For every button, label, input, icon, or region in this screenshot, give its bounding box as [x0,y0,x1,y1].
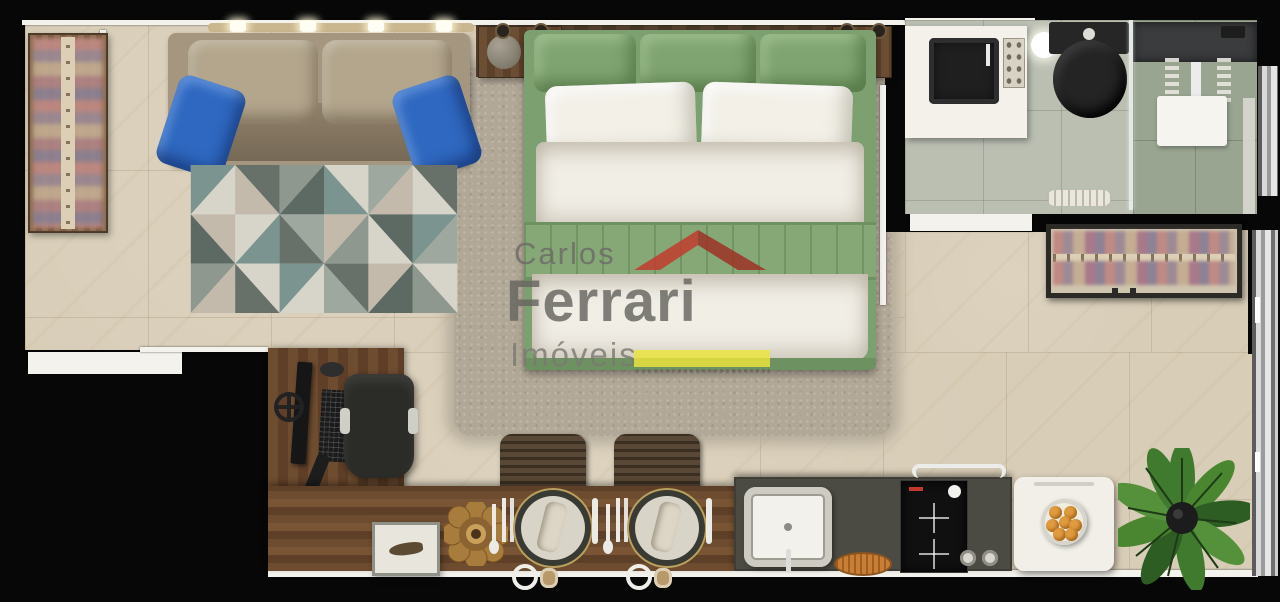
control-dial [948,485,961,498]
wall-line-bed-right [880,85,886,305]
glass-cup [654,568,672,588]
geometric-rug [190,165,458,313]
wall-lamp-icon [495,23,511,39]
flush-button [1083,28,1095,40]
faucet-icon [786,549,791,573]
napkin [535,500,568,554]
rack-foot [1130,288,1136,298]
faucet-icon [986,44,990,66]
kitchen-sink [744,487,832,567]
clothes-rack-right [1046,224,1242,298]
shower-column [1191,62,1201,98]
spoon-icon [492,504,496,542]
napkin [649,500,682,554]
plate [635,496,699,560]
plate [521,496,585,560]
white-side-table [372,522,440,576]
bathroom-window [1258,66,1278,196]
office-chair [344,374,414,478]
control-knob [982,550,998,566]
caster-wheel-icon [274,392,304,422]
oven-handle [912,464,1006,478]
spot-light-icon [368,21,384,32]
dining-chair [614,434,700,492]
fork-icon [502,498,506,542]
orange-fruit [1065,528,1078,541]
mouse [320,362,344,377]
bathroom-door-opening [910,211,1032,231]
spot-light-icon [300,21,316,32]
balcony-sliding-door [1252,230,1278,576]
drain-icon [784,523,792,531]
door-handle [1255,297,1260,323]
sofa [168,33,470,165]
wardrobe-left [28,33,108,233]
black-sink [929,38,999,104]
potted-plant [1118,448,1250,590]
fork-icon [510,498,514,542]
wall-line-under-living [140,347,268,352]
brand-mark [909,487,923,491]
spot-light-icon [436,21,452,32]
hanging-clothes-row [1053,261,1235,285]
rack-foot [1112,288,1118,298]
black-toilet [1053,40,1127,118]
fruit-bowl [1041,499,1087,545]
saucer-ring [512,564,538,590]
orange-dish [834,552,892,576]
accessory-tray [1003,38,1025,88]
place-setting [488,488,618,602]
armrest [340,408,350,434]
saucer-ring [626,564,652,590]
bathroom [905,20,1257,214]
outside-bottom-left [0,350,268,602]
bird-sculpture [388,541,423,558]
decor-stone-sphere [487,35,521,69]
shower-head [1221,26,1245,38]
double-bed [524,30,876,370]
closet-rod [61,37,75,229]
bed-foot-edge [524,358,876,370]
wall-segment-left-bottom [28,352,182,374]
module-handle [1034,482,1094,486]
place-setting [602,488,732,602]
fork-icon [616,498,620,542]
glass-cup [540,568,558,588]
shower-wall-panel [1243,98,1255,214]
white-duvet-foot [532,274,868,360]
white-duvet [536,142,864,228]
fork-icon [624,498,628,542]
control-knob [960,550,976,566]
green-blanket-band [524,222,876,280]
floorplan-canvas: Carlos Ferrari Imóveis [0,0,1280,602]
dining-chair [500,434,586,492]
door-handle [1255,452,1260,472]
ceiling-spot-rail [208,23,474,32]
knife-icon [706,498,712,544]
burner-mark-icon [919,503,949,533]
shower-glass-partition [1129,20,1133,210]
knife-icon [592,498,598,544]
burner-mark-icon [919,539,949,569]
spot-light-icon [230,21,246,32]
hanging-clothes-row [1053,231,1235,255]
two-burner-cooktop [900,480,968,573]
armrest [408,408,418,434]
shower-tray [1157,96,1227,146]
rolled-towel [1047,190,1111,206]
spoon-icon [606,504,610,542]
